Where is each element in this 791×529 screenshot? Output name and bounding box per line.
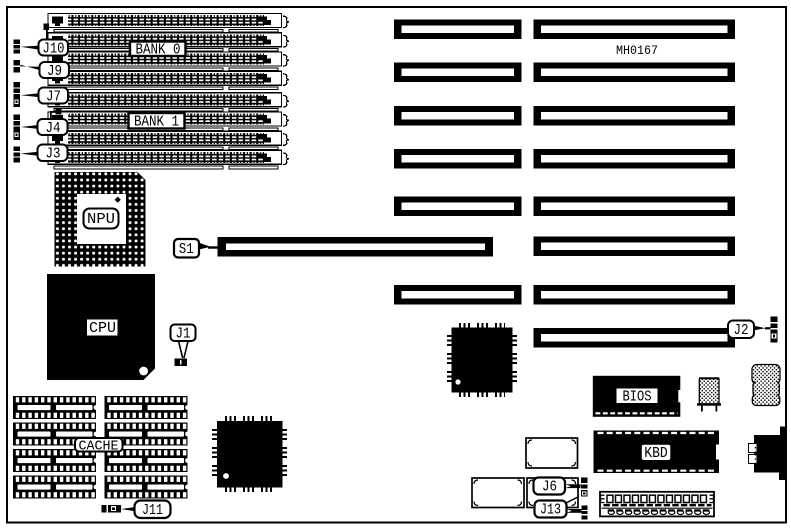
svg-text:J11: J11: [142, 503, 163, 519]
svg-text:NPU: NPU: [87, 212, 115, 228]
svg-text:J10: J10: [43, 41, 65, 57]
svg-text:MH0167: MH0167: [616, 43, 658, 58]
svg-text:J3: J3: [46, 147, 61, 163]
svg-text:BANK 0: BANK 0: [136, 42, 181, 58]
svg-text:CACHE: CACHE: [79, 439, 119, 454]
svg-text:J1: J1: [176, 326, 191, 342]
svg-text:BIOS: BIOS: [623, 389, 652, 405]
svg-text:KBD: KBD: [644, 446, 668, 462]
svg-text:S1: S1: [179, 242, 194, 258]
svg-text:J4: J4: [46, 121, 61, 137]
svg-text:BANK 1: BANK 1: [134, 114, 179, 130]
svg-text:J9: J9: [47, 64, 62, 80]
svg-text:J6: J6: [542, 480, 557, 496]
svg-text:J2: J2: [734, 323, 749, 339]
svg-text:CPU: CPU: [89, 321, 116, 337]
svg-text:J13: J13: [540, 503, 561, 519]
svg-text:J7: J7: [46, 89, 61, 105]
